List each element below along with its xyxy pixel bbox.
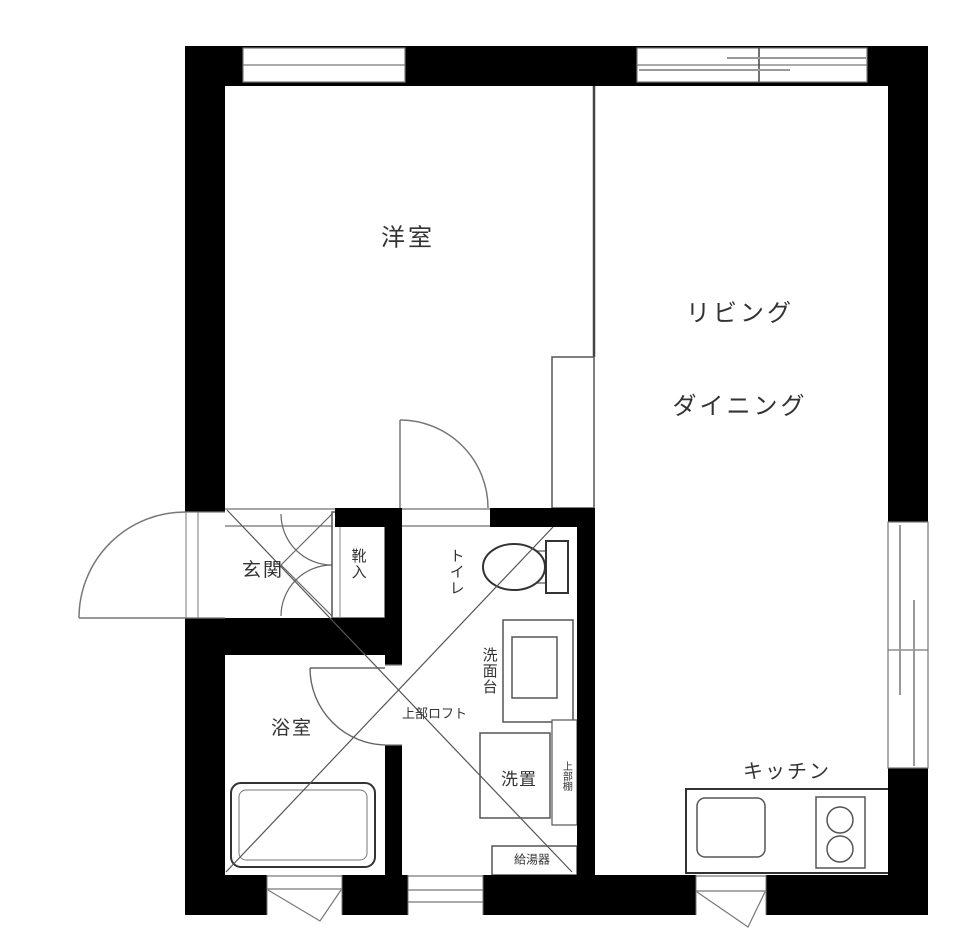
window-bottom-bathroom [267, 875, 342, 921]
wall-left-upper [185, 46, 225, 512]
wall-bottom-4 [766, 875, 928, 915]
label-shoe-storage: 靴入 [348, 548, 367, 580]
wall-right-upper [888, 46, 928, 522]
wall-bottom-1 [185, 875, 267, 915]
label-upper-loft: 上部ロフト [402, 706, 467, 723]
label-western-room: 洋室 [381, 224, 435, 255]
window-top-right [637, 48, 867, 82]
window-top-left [243, 48, 405, 82]
washstand-icon [503, 620, 573, 722]
label-water-heater: 給湯器 [514, 852, 550, 867]
kitchen-sink-icon [697, 798, 765, 857]
bathroom-doorway [385, 665, 402, 745]
label-living-dining: リビング ダイニング [673, 238, 808, 484]
floor-plan: 洋室 リビング ダイニング 玄関 靴入 トイレ 洗面台 上部ロフト 洗置 上部棚… [0, 0, 960, 948]
window-bottom-corridor [408, 875, 483, 915]
kitchen-counter [686, 789, 891, 873]
label-kitchen: キッチン [743, 760, 831, 786]
wall-bottom-2 [342, 875, 408, 915]
bathtub-icon [231, 783, 375, 867]
floor-plan-drawing [0, 0, 960, 948]
label-living-line2: ダイニング [673, 392, 808, 423]
western-room-doorway [402, 508, 490, 527]
toilet-icon [483, 541, 568, 593]
label-upper-shelf: 上部棚 [559, 761, 572, 791]
wall-entrance-bathroom [185, 618, 402, 655]
wall-bottom-3 [483, 875, 696, 915]
label-washstand: 洗面台 [479, 647, 498, 695]
partition-column [552, 357, 594, 508]
label-entrance: 玄関 [242, 559, 284, 583]
label-living-line1: リビング [673, 300, 808, 331]
label-laundry-space: 洗置 [501, 769, 537, 791]
label-toilet: トイレ [446, 548, 465, 596]
label-bathroom: 浴室 [271, 717, 313, 741]
window-right [888, 522, 928, 768]
wall-left-lower [185, 618, 225, 915]
entrance-opening [185, 512, 225, 618]
wall-corridor-living [577, 510, 595, 875]
